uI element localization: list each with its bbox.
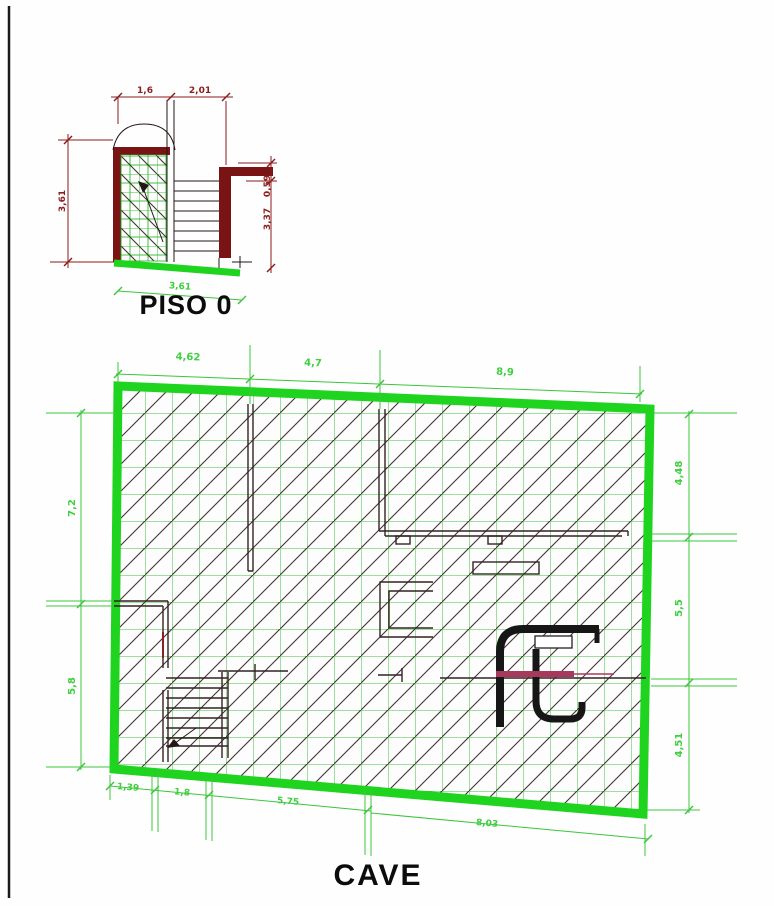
basement-dim-left-1: 7,2 [67,499,78,517]
basement-dim-bottom-3: 5,75 [276,796,299,808]
floor0-stair-shaft [113,100,252,268]
basement-outline [114,386,650,814]
basement-dim-top-3: 8,9 [496,367,514,379]
logo-lintel-rect [535,636,572,648]
floor0-dim-right-2: 3,37 [263,208,273,230]
basement-dim-right-3: 4,51 [674,733,685,758]
floor0-dim-left: 3,61 [58,190,68,212]
logo-accent-bar [496,671,574,677]
basement-dim-right-2: 5,5 [674,599,685,617]
cad-drawing: 1,6 2,01 3,61 0,59 3,37 3,61 [0,0,774,906]
basement-dim-bottom-2: 1,8 [174,787,191,798]
floor0-dim-right-1: 0,59 [263,175,273,197]
floor0-plan: 1,6 2,01 3,61 0,59 3,37 3,61 [50,86,277,320]
basement-dim-top-1: 4,62 [175,351,200,363]
basement-plan: 4,62 4,7 8,9 4,48 5,5 4,51 [46,345,737,892]
floor0-door-arcs [113,124,175,150]
basement-title: CAVE [333,859,422,892]
floor0-dim-top-2: 2,01 [189,86,211,96]
drawing-sheet: 1,6 2,01 3,61 0,59 3,37 3,61 [0,0,774,906]
basement-dim-left-2: 5,8 [67,677,78,695]
floor0-dim-top-1: 1,6 [137,86,153,96]
basement-dim-bottom-1: 1,39 [116,782,139,794]
basement-dim-top-2: 4,7 [304,358,322,370]
floor0-stair-treads [174,181,219,251]
floor0-title: PISO 0 [139,290,232,320]
basement-dim-right-1: 4,48 [674,461,685,486]
basement-dim-bottom-4: 8,03 [475,818,498,830]
